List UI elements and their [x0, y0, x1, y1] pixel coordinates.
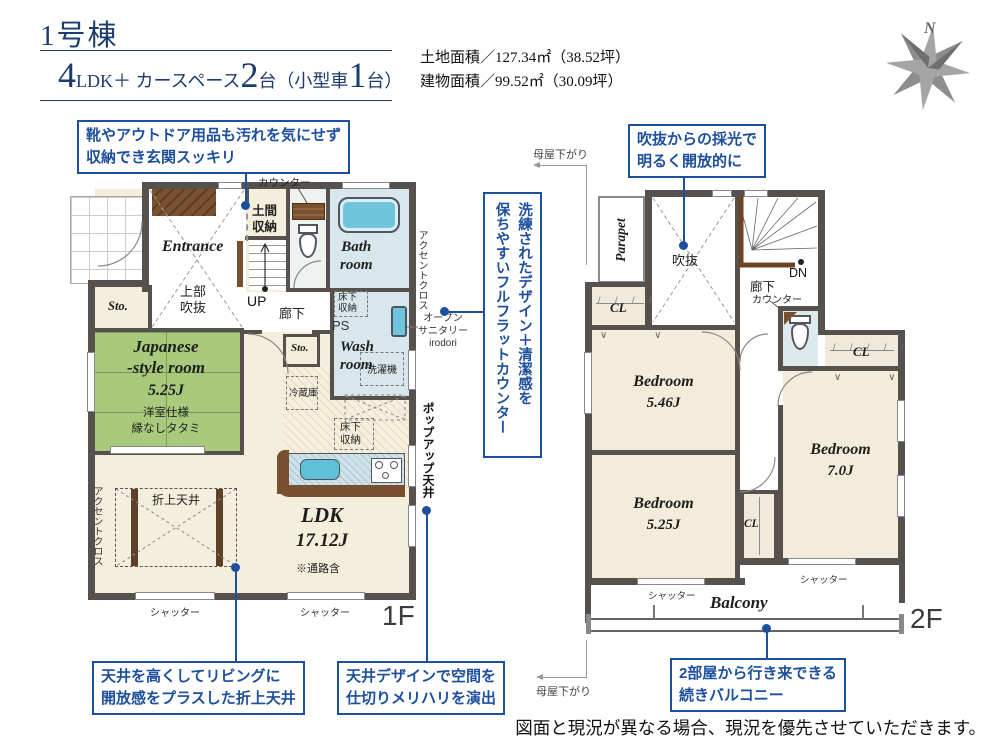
f2-bed1-label: Bedroom 5.46J — [592, 370, 735, 415]
f1-stairs-handrail — [237, 241, 243, 287]
f1-bath-line1: Bath — [340, 238, 373, 256]
f1-upper-void-line1: 上部 — [180, 284, 206, 300]
f2-wall — [818, 330, 905, 335]
f1-jroom-l3: 5.25J — [92, 381, 240, 401]
f2-toilet-corner-counter — [784, 312, 797, 325]
summary-big-2: 2 — [240, 54, 258, 96]
f1-wash-line1: Wash — [340, 338, 374, 356]
moya-line — [586, 165, 587, 265]
f2-wall — [735, 190, 740, 330]
f1-doma-line2: 収納 — [252, 220, 277, 236]
f1-shutter-label-2: シャッター — [300, 604, 350, 619]
f1-ldk-label: LDK 17.12J — [262, 502, 382, 554]
f2-cl-left-label: CL — [610, 300, 627, 316]
window — [897, 400, 905, 442]
window — [744, 190, 768, 197]
callout-genkan-l1: 靴やアウトドア用品も汚れを気にせず — [86, 125, 341, 147]
f1-wall — [148, 285, 152, 332]
f1-ldk-note: ※通路含 — [296, 560, 340, 576]
f1-wall — [330, 396, 416, 400]
callout-ceiling-l1: 天井デザインで空間を — [346, 666, 496, 688]
page-title: 1号棟 — [40, 12, 119, 54]
callout-balcony: 2部屋から行き来できる 続きバルコニー — [670, 658, 846, 712]
f2-wall — [778, 366, 905, 371]
summary-mid-2: 台（小型車 — [258, 67, 348, 93]
summary-mid-3: 台） — [366, 67, 402, 93]
callout-raised-ceiling: 天井を高くしてリビングに 開放感をプラスした折上天井 — [92, 661, 305, 715]
f2-balcony-rail-outer — [588, 618, 904, 620]
f2-balcony-label: Balcony — [710, 593, 768, 613]
callout-dot — [231, 563, 240, 572]
leader-line — [766, 632, 768, 658]
disclaimer-text: 図面と現況が異なる場合、現況を優先させていただきます。 — [515, 715, 986, 740]
f2-balcony-tick — [653, 605, 655, 619]
f1-entrance-label: Entrance — [162, 238, 223, 256]
plan-summary: 4LDK＋ カースペース2台（小型車1台） — [58, 54, 392, 96]
f1-doma-label: 土間 収納 — [252, 204, 277, 235]
callout-void-l1: 吹抜からの採光で — [637, 129, 757, 151]
f1-counter-edge-front — [277, 485, 405, 497]
callout-oriage-l2: 開放感をプラスした折上天井 — [101, 688, 296, 710]
f1-kitchen-sink — [300, 459, 340, 480]
f2-shutter-label-1: シャッター — [648, 588, 696, 602]
f2-wall — [585, 450, 740, 455]
f1-porch — [70, 196, 144, 284]
f1-stove-burner-2 — [390, 461, 398, 469]
f1-wall — [286, 189, 290, 292]
leader-line — [235, 570, 237, 661]
f1-wall — [88, 328, 244, 332]
f2-wall — [645, 190, 652, 287]
f1-jroom-note: 洋室仕様 縁なしタタミ — [92, 406, 240, 437]
f2-wall — [735, 330, 740, 583]
f1-underfloor-kit-l1: 床下 — [340, 421, 361, 434]
f2-cl-right-label: CL — [853, 344, 870, 360]
f1-ldk-l2: 17.12J — [262, 529, 382, 554]
f1-japanese-room-label: Japanese -style room 5.25J — [92, 336, 240, 401]
f1-wall — [142, 182, 149, 292]
callout-oriage-l1: 天井を高くしてリビングに — [101, 666, 296, 688]
f1-upper-void-label: 上部 吹抜 — [180, 284, 206, 317]
callout-dot — [440, 307, 449, 316]
f1-raised-ceiling-label: 折上天井 — [152, 491, 200, 508]
callout-ceiling-design: 天井デザインで空間を 仕切りメリハリを演出 — [337, 661, 505, 715]
f1-toilet-counter — [292, 203, 325, 220]
window — [287, 592, 365, 600]
f1-popup-ceiling-label: ポップアップ天井 — [420, 402, 437, 510]
window — [135, 592, 215, 600]
f1-ceiling-beam — [131, 489, 138, 566]
f2-cl-mid-label: CL — [744, 518, 759, 530]
leader-line — [683, 170, 685, 245]
f1-accent-cloth-label-right: アクセントクロス — [414, 230, 429, 320]
sanitary-l3: irodori — [418, 338, 468, 351]
f2-counter-label: カウンター — [752, 291, 802, 306]
summary-big-4: 4 — [58, 54, 76, 96]
f2-balcony-post — [899, 614, 904, 634]
f1-wall — [245, 236, 290, 240]
f1-wall — [244, 330, 262, 334]
callout-balcony-l1: 2部屋から行き来できる — [679, 663, 837, 685]
f2-wall — [645, 282, 652, 328]
f1-storage-label: Sto. — [108, 299, 128, 314]
f1-stove-burner-1 — [375, 461, 383, 469]
f1-ceiling-beam — [216, 489, 223, 566]
f2-shutter-label-2: シャッター — [800, 572, 848, 586]
f1-bath-line2: room — [340, 256, 373, 274]
f1-wall — [88, 280, 149, 287]
f2-closet-arrow-marks: ∨ ∨ — [834, 372, 917, 383]
f1-jroom-note1: 洋室仕様 — [92, 406, 240, 422]
callout-genkan: 靴やアウトドア用品も汚れを気にせず 収納でき玄関スッキリ — [77, 120, 350, 174]
f2-floor-label: 2F — [910, 603, 943, 635]
f1-underfloor-label-kitchen: 床下 収納 — [340, 421, 361, 447]
window — [712, 190, 732, 197]
f1-underfloor-label-hall: 床下 収納 — [338, 292, 357, 315]
window — [584, 352, 592, 414]
f1-washer-label: 洗濯機 — [367, 361, 397, 376]
f1-shutter-label-1: シャッター — [150, 604, 200, 619]
f1-bath-label: Bath room — [340, 238, 373, 274]
f2-bed2-name: Bedroom — [592, 492, 735, 515]
callout-counter-c2: 保ちやすいフルフラットカウンター — [490, 202, 512, 448]
f2-bed1-name: Bedroom — [592, 370, 735, 393]
f2-dn-label: DN — [789, 266, 807, 280]
f2-balcony-tick — [862, 605, 864, 619]
window — [788, 558, 856, 565]
f2-cl-right-hangers: / / / / / — [833, 342, 910, 352]
f1-underfloor-kit-l2: 収納 — [340, 434, 361, 447]
f1-jroom-l1: Japanese — [92, 336, 240, 357]
f1-upper-void-line2: 吹抜 — [180, 300, 206, 316]
f1-up-label: UP — [247, 293, 266, 309]
f2-wall — [818, 190, 825, 335]
f2-bed2-label: Bedroom 5.25J — [592, 492, 735, 537]
callout-dot — [679, 241, 688, 250]
callout-dot — [422, 506, 431, 515]
f2-wall — [899, 565, 905, 603]
moya-sagari-label-top: 母屋下がり — [533, 146, 588, 162]
moya-arrow — [536, 674, 543, 680]
f2-fan-stairs — [740, 198, 817, 250]
f2-balcony-post — [586, 614, 591, 634]
callout-dot — [241, 201, 250, 210]
f1-wall — [326, 189, 330, 292]
f2-wall — [778, 306, 783, 371]
f1-open-sanitary-label: オープン サニタリー irodori — [418, 313, 468, 351]
f1-hallway-label: 廊下 — [279, 303, 305, 322]
f1-underfloor-hall-l2: 収納 — [338, 303, 357, 314]
f1-wall — [240, 328, 244, 455]
callout-counter-c1: 洗練されたデザイン＋清潔感を — [512, 202, 534, 448]
f1-ldk-l1: LDK — [262, 502, 382, 529]
leader-line — [426, 514, 428, 661]
f1-fridge-label: 冷蔵庫 — [289, 385, 318, 399]
f2-bed3-label: Bedroom 7.0J — [783, 438, 898, 483]
f2-cl-mid-rail — [759, 497, 760, 555]
floor-plan-page: 1号棟 4LDK＋ カースペース2台（小型車1台） 土地面積／127.34㎡（3… — [0, 0, 1000, 751]
f1-jroom-note2: 縁なしタタミ — [92, 422, 240, 438]
leader-line — [447, 311, 484, 313]
window — [408, 505, 416, 547]
window — [408, 350, 416, 390]
f1-accent-cloth-label-left: アクセントクロス — [89, 486, 104, 578]
callout-genkan-l2: 収納でき玄関スッキリ — [86, 147, 341, 169]
f1-floor-label: 1F — [382, 600, 415, 632]
land-area-text: 土地面積／127.34㎡（38.52坪） — [420, 46, 630, 67]
moya-arrow — [533, 162, 540, 168]
f2-wall — [778, 306, 825, 311]
f1-storage2-label: Sto. — [291, 342, 308, 354]
summary-big-1: 1 — [348, 54, 366, 96]
window — [897, 475, 905, 517]
f1-bathtub — [338, 197, 400, 233]
moya-sagari-label-bottom: 母屋下がり — [536, 683, 591, 699]
f2-wall — [585, 282, 652, 287]
callout-ceiling-l2: 仕切りメリハリを演出 — [346, 688, 496, 710]
f2-balcony-rail-inner — [588, 630, 904, 632]
f1-wash-sink — [391, 306, 407, 337]
window — [110, 446, 205, 454]
window — [637, 578, 705, 585]
f1-doma-line1: 土間 — [252, 204, 277, 220]
callout-dot — [762, 624, 771, 633]
sanitary-l2: サニタリー — [418, 326, 468, 339]
moya-line — [542, 677, 587, 678]
moya-line — [539, 165, 587, 166]
window — [408, 445, 416, 487]
f2-void-label: 吹抜 — [672, 250, 698, 269]
f1-underfloor-hall-l1: 床下 — [338, 292, 357, 303]
callout-flat-counter: 洗練されたデザイン＋清潔感を 保ちやすいフルフラットカウンター — [483, 192, 542, 458]
f2-bed3-size: 7.0J — [783, 461, 898, 483]
f1-ps-label: PS — [332, 318, 349, 333]
f1-jroom-l2: -style room — [92, 357, 240, 378]
window — [342, 182, 390, 189]
compass-north-label: N — [924, 20, 936, 38]
f1-stove-burner-3 — [382, 472, 389, 479]
f1-counter-edge-side — [277, 450, 289, 494]
f2-closet-arrow-marks: ∨ ∨ — [600, 330, 683, 341]
f1-shoe-cabinet — [152, 189, 216, 216]
building-area-text: 建物面積／99.52㎡（30.09坪） — [420, 70, 623, 91]
f2-bed3-name: Bedroom — [783, 438, 898, 461]
callout-balcony-l2: 続きバルコニー — [679, 685, 837, 707]
f2-bed1-size: 5.46J — [592, 393, 735, 415]
f2-wall — [778, 405, 783, 565]
summary-mid-1: LDK＋ カースペース — [76, 67, 240, 93]
f2-parapet-label: Parapet — [613, 200, 629, 280]
f1-counter-label: カウンター — [258, 175, 311, 190]
window — [218, 182, 242, 189]
header-rule-bottom — [40, 100, 392, 101]
f2-cl-left-hangers: / / / / — [598, 295, 658, 305]
callout-void: 吹抜からの採光で 明るく開放的に — [628, 124, 766, 178]
f2-bed2-size: 5.25J — [592, 515, 735, 537]
callout-void-l2: 明るく開放的に — [637, 151, 757, 173]
moya-line — [586, 640, 587, 678]
f1-stairs — [249, 238, 286, 290]
